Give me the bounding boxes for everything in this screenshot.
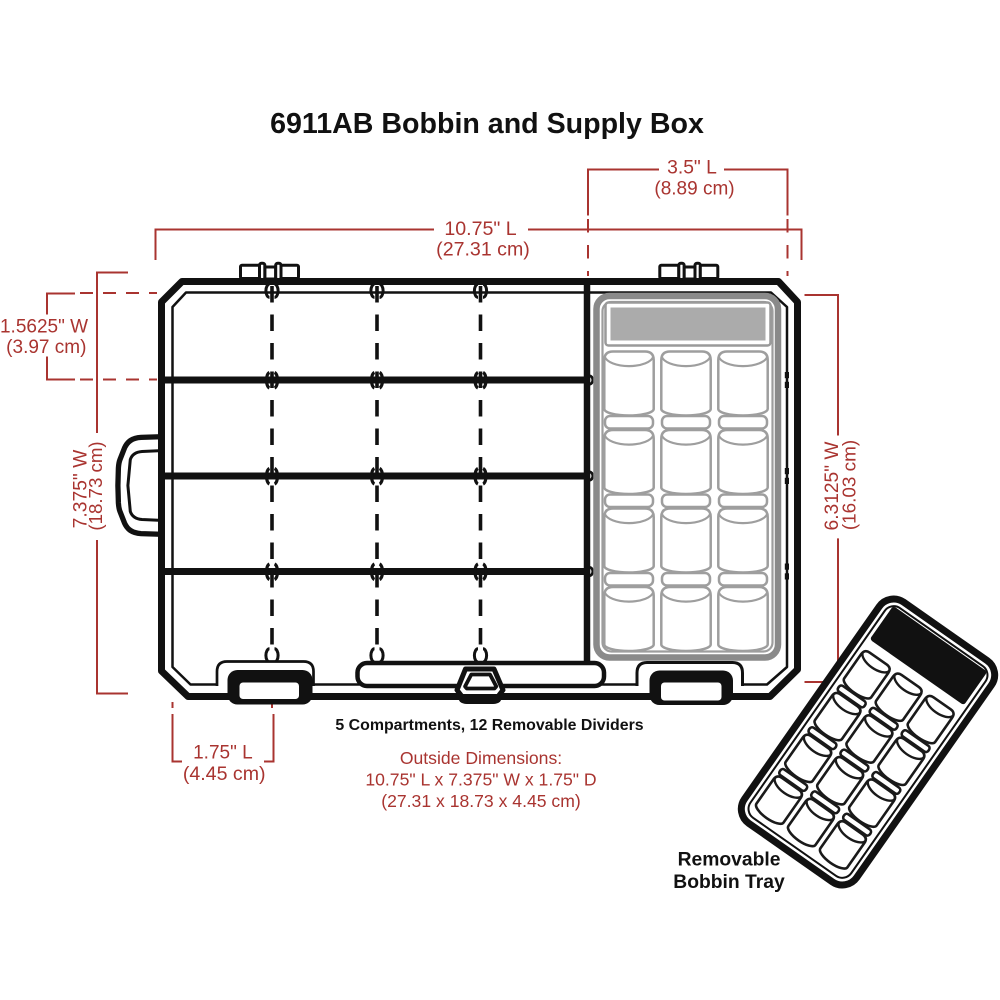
svg-text:Outside Dimensions:: Outside Dimensions: xyxy=(400,748,562,768)
svg-text:(4.45 cm): (4.45 cm) xyxy=(183,763,266,785)
svg-text:(3.97 cm): (3.97 cm) xyxy=(6,337,86,358)
svg-text:(27.31 x 18.73 x 4.45 cm): (27.31 x 18.73 x 4.45 cm) xyxy=(381,791,581,811)
svg-text:5 Compartments, 12 Removable D: 5 Compartments, 12 Removable Dividers xyxy=(335,717,643,734)
svg-text:(18.73 cm): (18.73 cm) xyxy=(85,441,106,530)
svg-text:3.5" L: 3.5" L xyxy=(667,158,717,179)
svg-text:10.75" L: 10.75" L xyxy=(444,218,516,240)
svg-text:Removable: Removable xyxy=(678,850,781,871)
svg-text:(16.03 cm): (16.03 cm) xyxy=(840,440,861,530)
svg-text:6911AB Bobbin and Supply Box: 6911AB Bobbin and Supply Box xyxy=(270,108,704,140)
svg-text:1.5625" W: 1.5625" W xyxy=(0,317,88,338)
svg-text:(8.89 cm): (8.89 cm) xyxy=(654,179,734,200)
svg-text:Bobbin Tray: Bobbin Tray xyxy=(673,872,785,893)
svg-text:10.75" L x 7.375" W x 1.75" D: 10.75" L x 7.375" W x 1.75" D xyxy=(365,770,596,790)
svg-text:1.75" L: 1.75" L xyxy=(193,742,253,763)
svg-text:(27.31 cm): (27.31 cm) xyxy=(436,239,530,261)
